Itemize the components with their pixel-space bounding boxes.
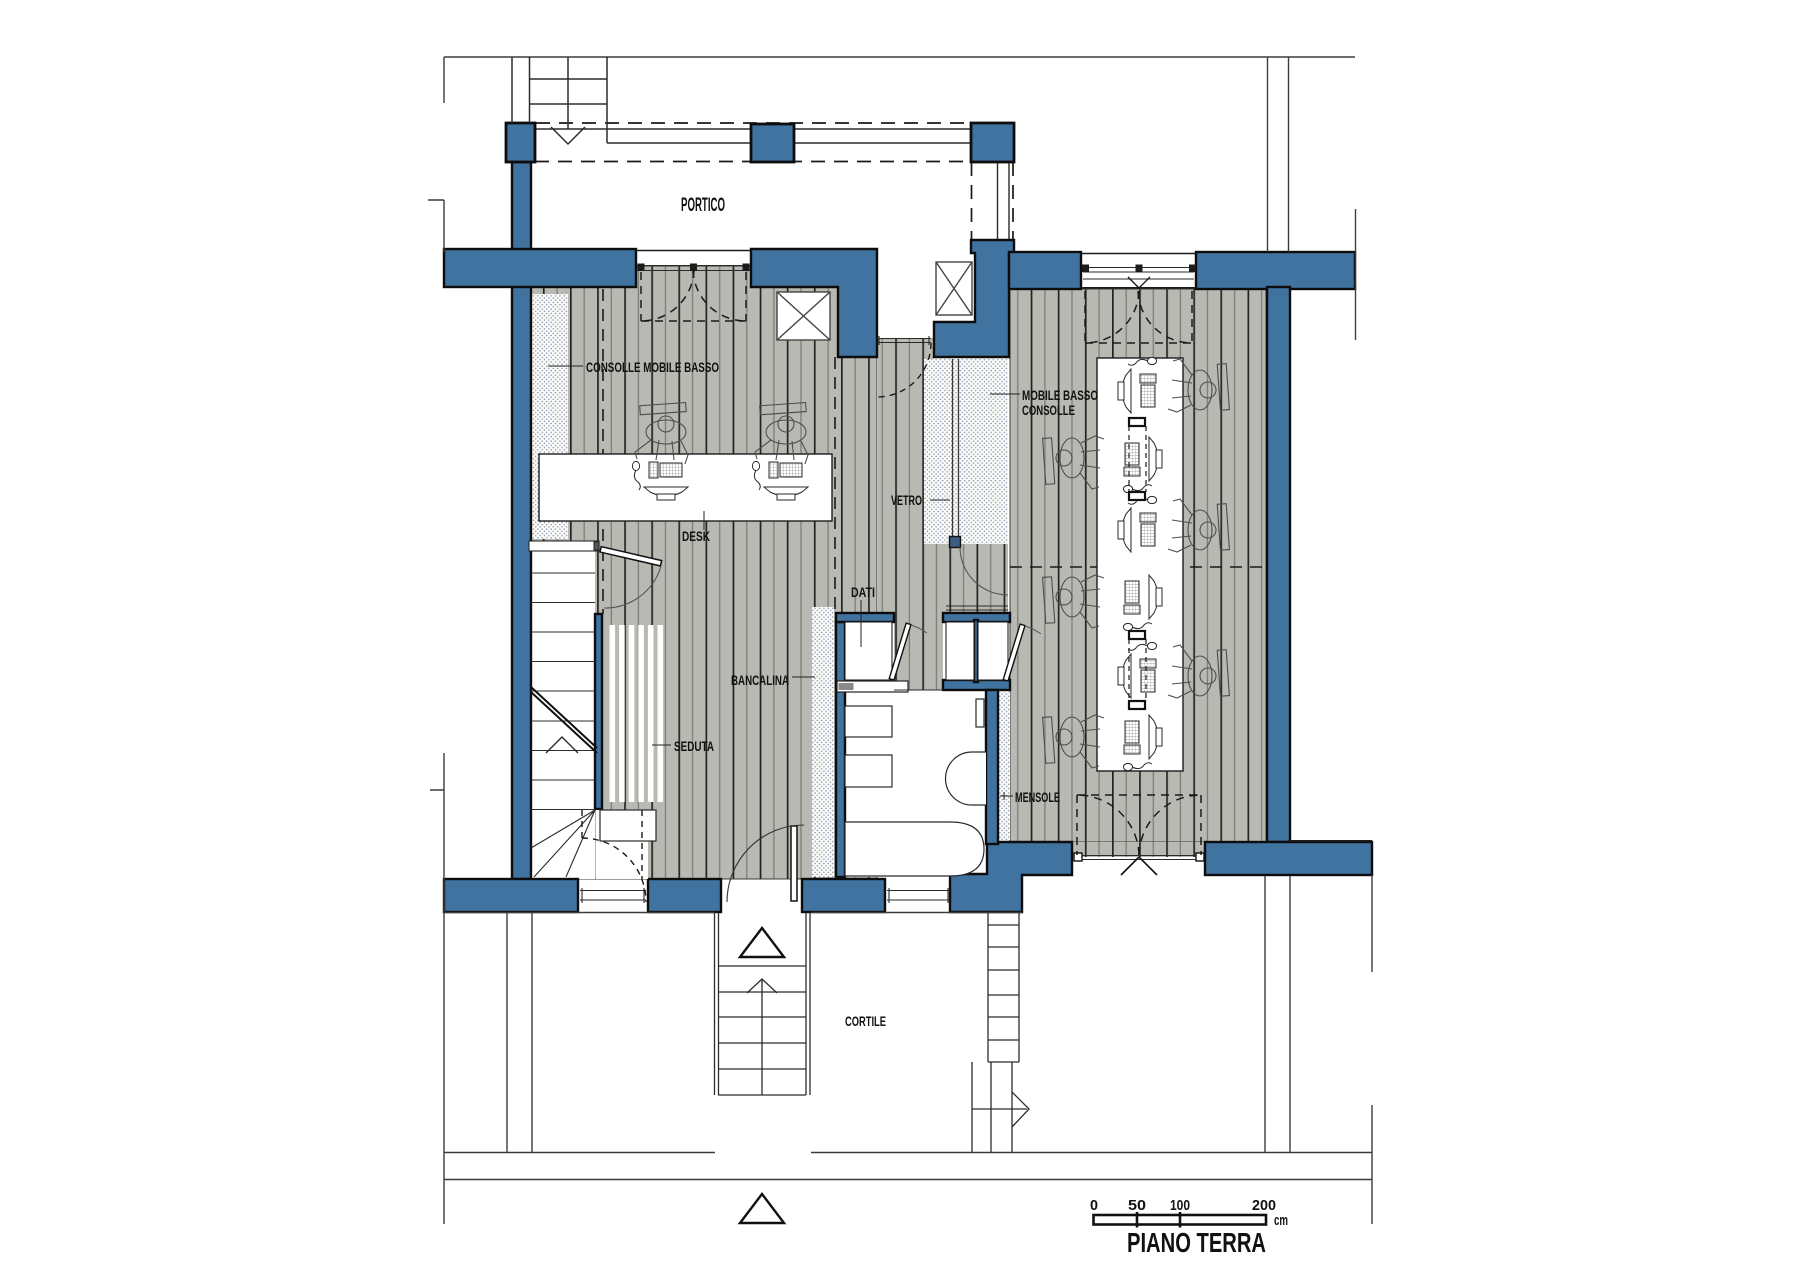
svg-text:BANCALINA: BANCALINA	[731, 673, 789, 688]
svg-text:VETRO: VETRO	[891, 493, 922, 508]
svg-text:DATI: DATI	[851, 585, 875, 600]
svg-text:SEDUTA: SEDUTA	[674, 739, 714, 754]
svg-text:MENSOLE: MENSOLE	[1015, 790, 1060, 805]
svg-text:100: 100	[1170, 1197, 1190, 1214]
svg-text:50: 50	[1128, 1197, 1146, 1214]
svg-text:PIANO TERRA: PIANO TERRA	[1127, 1227, 1266, 1258]
svg-text:CONSOLLE: CONSOLLE	[1022, 403, 1075, 418]
svg-text:PORTICO: PORTICO	[681, 195, 725, 216]
svg-text:CORTILE: CORTILE	[845, 1014, 886, 1029]
svg-text:cm: cm	[1274, 1212, 1288, 1229]
svg-text:200: 200	[1252, 1197, 1276, 1214]
svg-text:0: 0	[1090, 1197, 1098, 1214]
svg-text:DESK: DESK	[682, 529, 710, 544]
svg-text:CONSOLLE MOBILE BASSO: CONSOLLE MOBILE BASSO	[586, 360, 719, 375]
svg-text:MOBILE BASSO: MOBILE BASSO	[1022, 388, 1098, 403]
